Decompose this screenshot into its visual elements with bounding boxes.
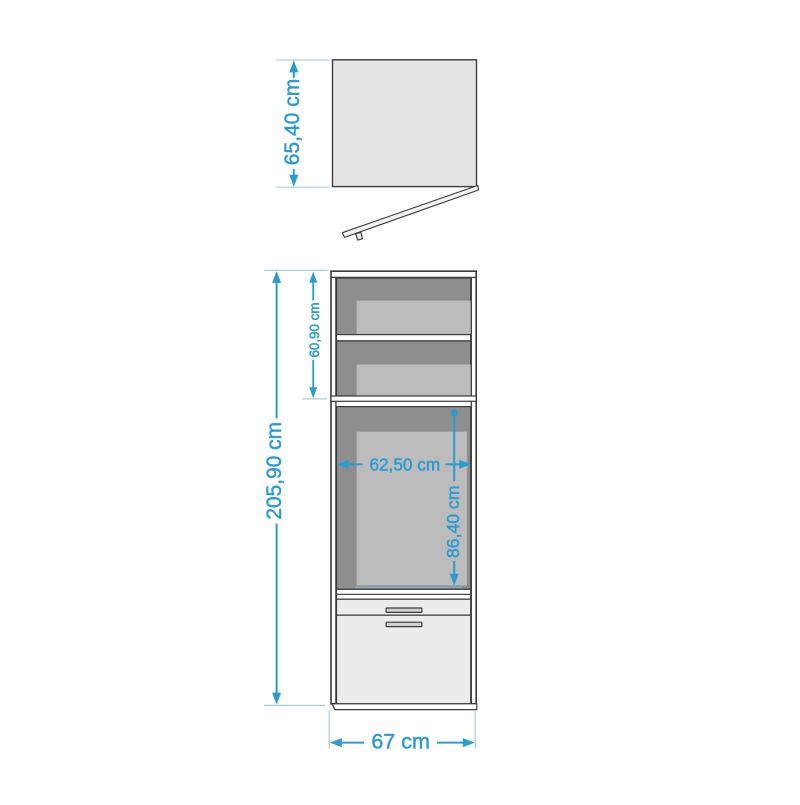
- svg-text:86,40 cm: 86,40 cm: [443, 486, 463, 558]
- svg-text:60,90 cm: 60,90 cm: [307, 302, 322, 357]
- svg-text:205,90 cm: 205,90 cm: [263, 422, 286, 520]
- svg-text:62,50 cm: 62,50 cm: [369, 454, 440, 474]
- svg-text:65,40 cm: 65,40 cm: [281, 79, 304, 165]
- svg-text:67 cm: 67 cm: [371, 730, 430, 754]
